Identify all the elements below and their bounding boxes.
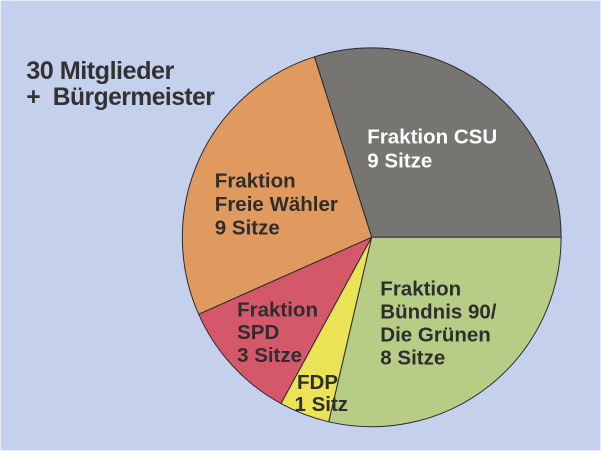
svg-text:Freie Wähler: Freie Wähler: [215, 193, 338, 216]
svg-text:FDP: FDP: [297, 371, 338, 394]
svg-text:Fraktion CSU: Fraktion CSU: [367, 126, 497, 149]
svg-text:Bündnis 90/: Bündnis 90/: [380, 301, 496, 324]
svg-text:Fraktion: Fraktion: [380, 278, 461, 301]
svg-text:8 Sitze: 8 Sitze: [380, 347, 445, 370]
svg-text:+ Bürgermeister: + Bürgermeister: [26, 84, 215, 111]
svg-text:Die Grünen: Die Grünen: [380, 324, 491, 347]
svg-text:9 Sitze: 9 Sitze: [367, 149, 432, 172]
svg-text:30 Mitglieder: 30 Mitglieder: [26, 57, 174, 85]
svg-text:9 Sitze: 9 Sitze: [215, 216, 280, 239]
svg-text:3 Sitze: 3 Sitze: [237, 344, 302, 367]
svg-text:Fraktion: Fraktion: [237, 298, 318, 321]
svg-text:Fraktion: Fraktion: [215, 169, 296, 192]
svg-text:1 Sitz: 1 Sitz: [295, 393, 349, 416]
svg-text:SPD: SPD: [237, 321, 279, 344]
